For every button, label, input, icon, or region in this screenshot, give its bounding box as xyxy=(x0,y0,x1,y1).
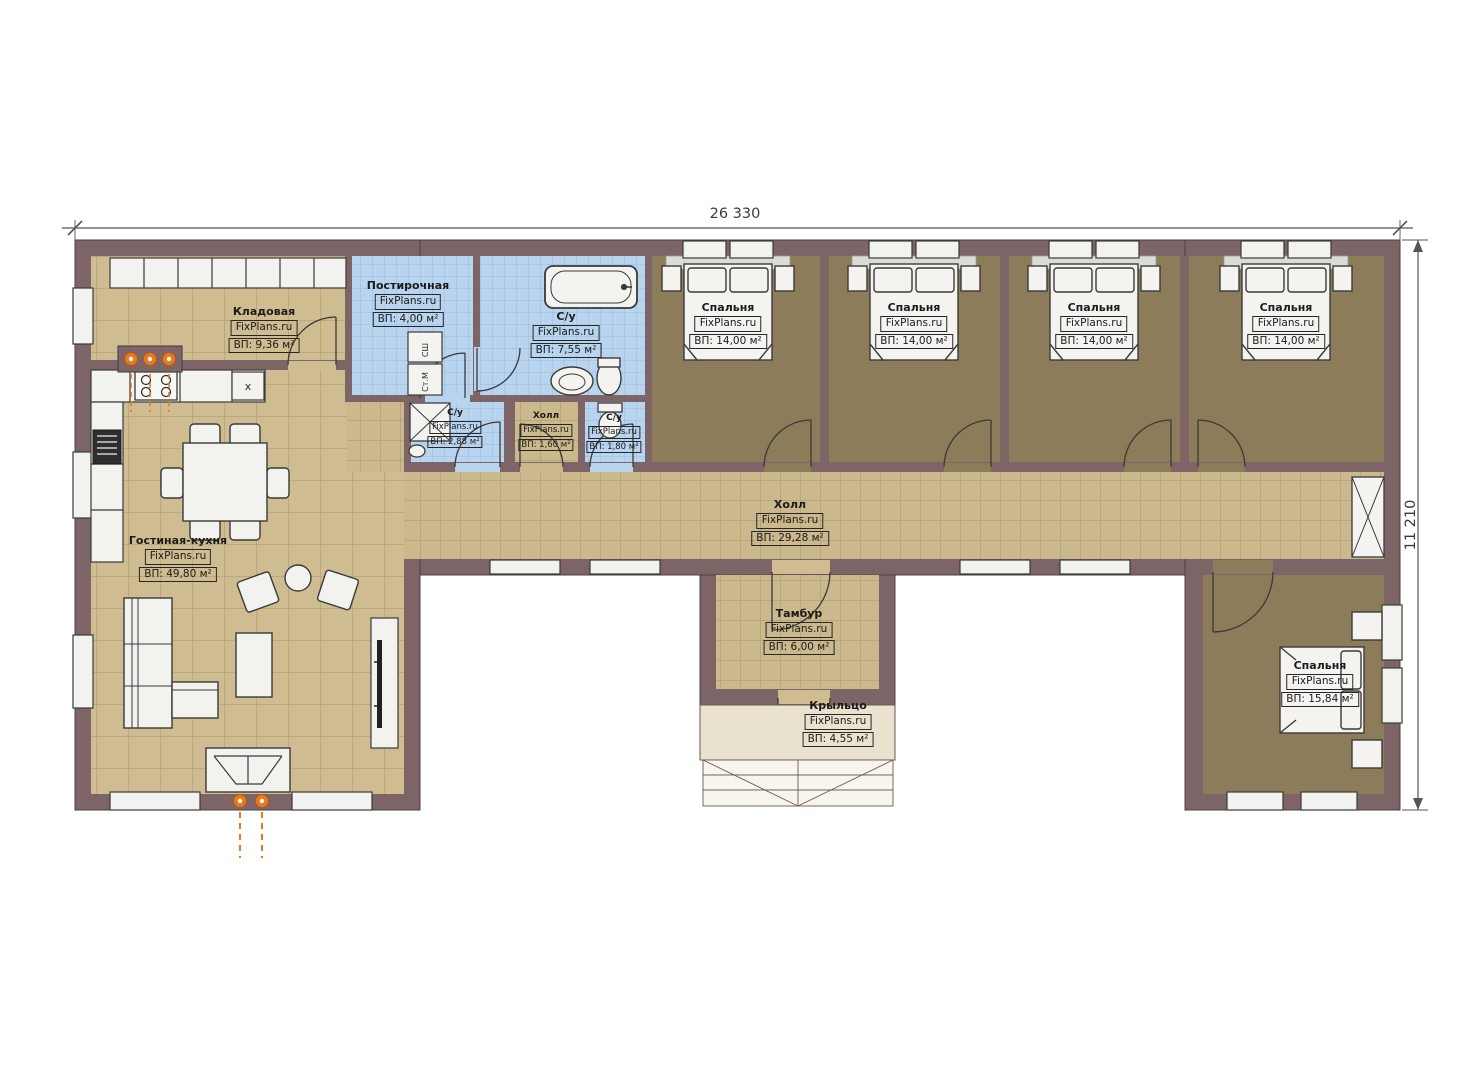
toilet-icon xyxy=(597,358,621,395)
room-label-bedroom-3: Спальня FixPlans.ru ВП: 14,00 м² xyxy=(1055,302,1133,349)
coffee-table-icon xyxy=(236,633,272,697)
watermark: FixPlans.ru xyxy=(805,714,872,730)
room-label-porch: Крыльцо FixPlans.ru ВП: 4,55 м² xyxy=(803,700,874,747)
room-label-laundry: Постирочная FixPlans.ru ВП: 4,00 м² xyxy=(367,280,449,327)
watermark: FixPlans.ru xyxy=(757,513,824,529)
room-name: Холл xyxy=(533,412,559,422)
room-name: Крыльцо xyxy=(809,700,867,712)
room-area: ВП: 14,00 м² xyxy=(1247,334,1325,350)
watermark: FixPlans.ru xyxy=(145,549,212,565)
room-label-bedroom-2: Спальня FixPlans.ru ВП: 14,00 м² xyxy=(875,302,953,349)
room-label-storage: Кладовая FixPlans.ru ВП: 9,36 м² xyxy=(229,306,300,353)
tv-stand-icon xyxy=(371,618,398,748)
dimension-width-label: 26 330 xyxy=(710,206,761,222)
room-area: ВП: 4,55 м² xyxy=(803,732,874,748)
room-area: ВП: 6,00 м² xyxy=(764,640,835,656)
dimension-height-label: 11 210 xyxy=(1403,500,1419,551)
storage-shelves-icon xyxy=(110,258,346,288)
watermark: FixPlans.ru xyxy=(1287,674,1354,690)
laundry-appliances: СШ Ст.М xyxy=(408,332,442,395)
room-area: ВП: 49,80 м² xyxy=(139,567,217,583)
room-label-wc-small: С/у FixPlans.ru ВП: 1,80 м² xyxy=(586,414,641,453)
room-label-hall-small: Холл FixPlans.ru ВП: 1,60 м² xyxy=(518,412,573,451)
room-area: ВП: 1,80 м² xyxy=(586,441,641,454)
watermark: FixPlans.ru xyxy=(695,316,762,332)
room-area: ВП: 1,60 м² xyxy=(518,439,573,452)
fridge-icon xyxy=(93,430,121,464)
room-name: Спальня xyxy=(1294,660,1347,672)
room-area: ВП: 15,84 м² xyxy=(1281,692,1359,708)
room-name: Спальня xyxy=(1260,302,1313,314)
watermark: FixPlans.ru xyxy=(375,294,442,310)
room-area: ВП: 14,00 м² xyxy=(875,334,953,350)
washer-label: Ст.М xyxy=(421,372,430,392)
watermark: FixPlans.ru xyxy=(766,622,833,638)
room-area: ВП: 29,28 м² xyxy=(751,531,829,547)
sink-unit-label: x xyxy=(245,380,252,393)
room-name: Кладовая xyxy=(233,306,295,318)
room-area: ВП: 4,00 м² xyxy=(373,312,444,328)
room-label-hall-main: Холл FixPlans.ru ВП: 29,28 м² xyxy=(751,499,829,546)
room-label-bathroom-main: С/у FixPlans.ru ВП: 7,55 м² xyxy=(531,311,602,358)
room-area: ВП: 2,88 м² xyxy=(427,436,482,449)
room-label-bedroom-5: Спальня FixPlans.ru ВП: 15,84 м² xyxy=(1281,660,1359,707)
room-label-bedroom-4: Спальня FixPlans.ru ВП: 14,00 м² xyxy=(1247,302,1325,349)
room-area: ВП: 7,55 м² xyxy=(531,343,602,359)
room-label-living-kitchen: Гостиная-кухня FixPlans.ru ВП: 49,80 м² xyxy=(129,535,227,582)
room-name: Холл xyxy=(774,499,806,511)
watermark: FixPlans.ru xyxy=(231,320,298,336)
stove-icon xyxy=(135,372,177,400)
room-area: ВП: 9,36 м² xyxy=(229,338,300,354)
watermark: FixPlans.ru xyxy=(881,316,948,332)
wardrobe-icon xyxy=(1352,477,1384,557)
floor-plan-page: x xyxy=(0,0,1473,1080)
room-name: Спальня xyxy=(1068,302,1121,314)
room-label-bedroom-1: Спальня FixPlans.ru ВП: 14,00 м² xyxy=(689,302,767,349)
watermark: FixPlans.ru xyxy=(429,421,481,434)
room-name: С/у xyxy=(447,409,463,419)
room-name: Постирочная xyxy=(367,280,449,292)
bathtub-icon xyxy=(545,266,637,308)
watermark: FixPlans.ru xyxy=(1253,316,1320,332)
room-name: Гостиная-кухня xyxy=(129,535,227,547)
watermark: FixPlans.ru xyxy=(1061,316,1128,332)
room-name: Спальня xyxy=(888,302,941,314)
room-label-vestibule: Тамбур FixPlans.ru ВП: 6,00 м² xyxy=(764,608,835,655)
dryer-label: СШ xyxy=(421,343,430,357)
kitchen-sink-unit: x xyxy=(232,372,264,400)
room-name: С/у xyxy=(606,414,622,424)
room-name: Спальня xyxy=(702,302,755,314)
room-name: Тамбур xyxy=(776,608,823,620)
watermark: FixPlans.ru xyxy=(533,325,600,341)
room-area: ВП: 14,00 м² xyxy=(689,334,767,350)
watermark: FixPlans.ru xyxy=(520,424,572,437)
watermark: FixPlans.ru xyxy=(588,426,640,439)
room-name: С/у xyxy=(556,311,575,323)
room-area: ВП: 14,00 м² xyxy=(1055,334,1133,350)
room-label-shower-room: С/у FixPlans.ru ВП: 2,88 м² xyxy=(427,409,482,448)
bathroom-sink-icon xyxy=(551,367,593,395)
